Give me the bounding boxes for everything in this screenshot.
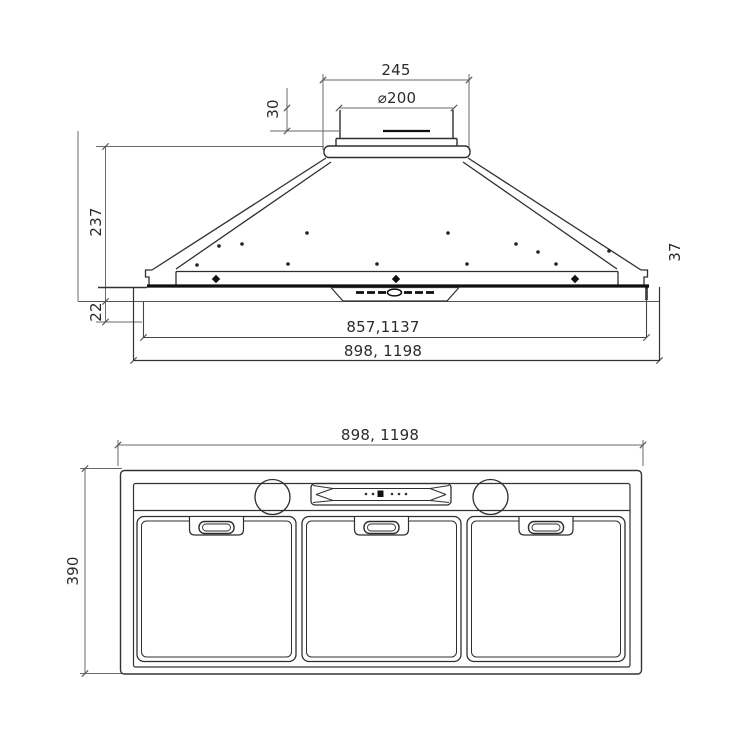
rivet-dots [195, 231, 611, 267]
dim-label-overall-width-plan: 898, 1198 [341, 426, 419, 444]
canopy-outline [146, 158, 648, 286]
filter-handle-notch [355, 517, 409, 535]
dim-label-cap-width: 245 [381, 61, 410, 79]
plan-dimension-ticks [82, 442, 646, 677]
control-knob-front [388, 289, 402, 296]
duct-stub [336, 110, 457, 146]
drawing-canvas: 245 ⌀200 30 237 22 857,1137 898, 1198 37 [0, 0, 750, 750]
plan-view: 898, 1198 390 [64, 426, 646, 677]
plan-outer-body [121, 471, 642, 675]
range-hood-technical-drawing: 245 ⌀200 30 237 22 857,1137 898, 1198 37 [0, 0, 750, 750]
filter-panel-center [302, 517, 461, 662]
control-panel-buttons-plan [365, 491, 408, 498]
dim-label-visible-rim-height: 22 [87, 302, 105, 322]
dim-label-overall-width-front: 898, 1198 [344, 342, 422, 360]
filter-panel-left [137, 517, 296, 662]
duct-flange [324, 146, 470, 158]
filter-handle-notch [190, 517, 244, 535]
dim-label-flange-height: 37 [666, 242, 684, 262]
dim-label-cutout-width: 857,1137 [346, 318, 419, 336]
filter-handle-notch [519, 517, 573, 535]
power-button-dot [378, 491, 384, 498]
dim-label-duct-stub-height: 30 [264, 99, 282, 119]
screw-diamonds [212, 275, 579, 283]
front-elevation-view: 245 ⌀200 30 237 22 857,1137 898, 1198 37 [78, 61, 684, 364]
filter-panel-right [467, 517, 625, 662]
dim-label-duct-diameter: ⌀200 [378, 89, 416, 107]
lamp-left [255, 480, 290, 515]
dim-label-hood-height: 237 [87, 207, 105, 236]
dim-label-overall-depth-plan: 390 [64, 556, 82, 585]
plan-dimension-lines [80, 440, 643, 674]
lamp-right [473, 480, 508, 515]
